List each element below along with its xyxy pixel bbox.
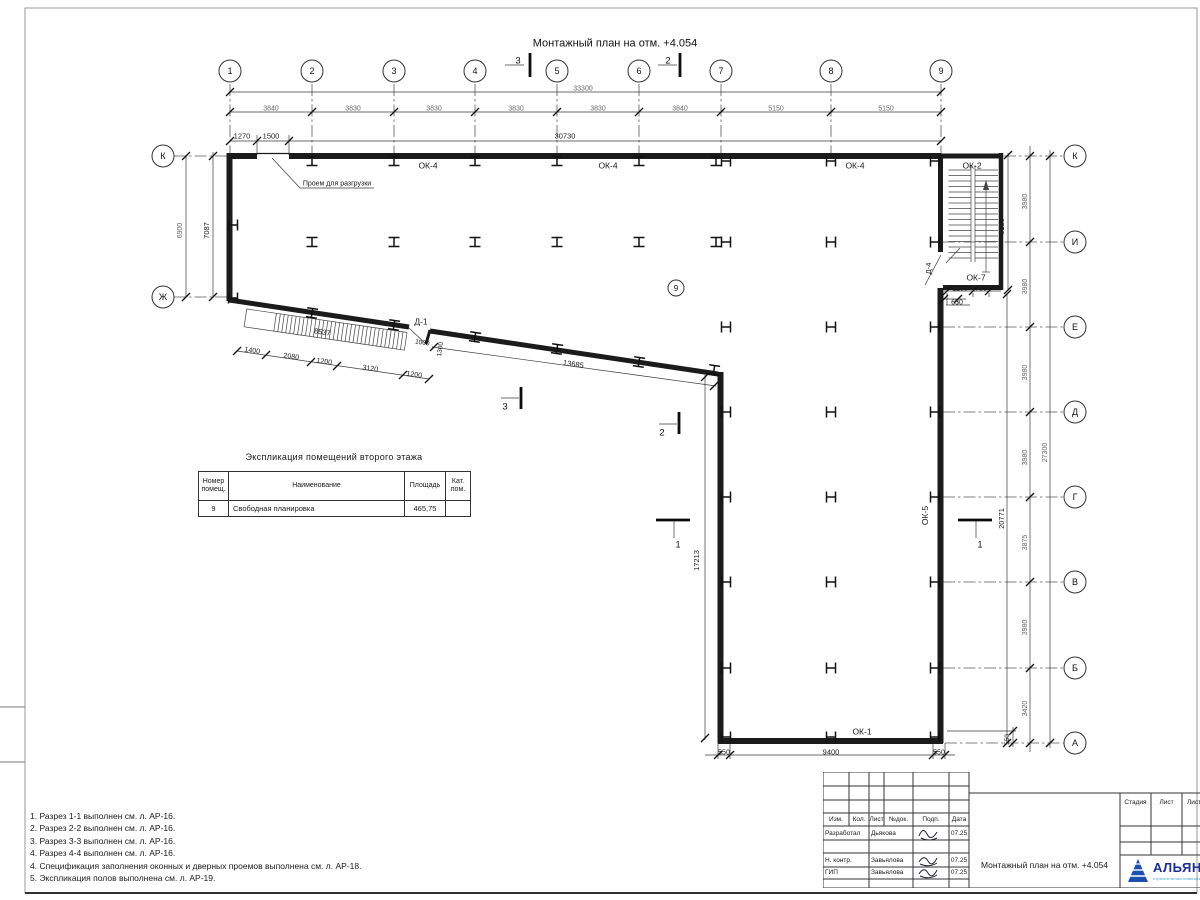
ramp-tread bbox=[365, 327, 368, 345]
note-line: 2. Разрез 2-2 выполнен см. л. АР-16. bbox=[30, 822, 361, 834]
axis-bubble-label: 3 bbox=[391, 66, 396, 76]
plan-label: 650 bbox=[951, 300, 963, 307]
ramp-tread bbox=[278, 314, 281, 332]
room-area-cell: 465,75 bbox=[405, 501, 446, 517]
steel-columns bbox=[229, 156, 940, 743]
ramp-tread bbox=[396, 331, 399, 349]
ramp-tread bbox=[290, 316, 293, 334]
note-line: 4. Спецификация заполнения оконных и две… bbox=[30, 860, 361, 872]
tb-header-izm: Изм. bbox=[823, 816, 849, 823]
tb-role-gip: ГИП bbox=[825, 869, 838, 876]
plan-label: 1500 bbox=[263, 132, 280, 141]
plan-label: 3830 bbox=[426, 106, 442, 113]
plan-label: ОК-4 bbox=[845, 161, 864, 171]
ramp-tread bbox=[393, 331, 396, 349]
column-symbol bbox=[722, 322, 731, 333]
section-marks bbox=[521, 53, 992, 520]
table-row: 9 Свободная планировка 465,75 bbox=[199, 501, 471, 517]
plan-label: 17213 bbox=[692, 550, 701, 571]
axis-bubble-label: 9 bbox=[674, 284, 679, 293]
axis-bubble: 5 bbox=[546, 60, 568, 82]
ramp-tread bbox=[373, 328, 376, 346]
plan-label: ОК-4 bbox=[598, 161, 617, 171]
axis-bubble-label: 6 bbox=[636, 66, 641, 76]
plan-label: ОК-5 bbox=[920, 506, 930, 525]
ramp-tread bbox=[345, 324, 348, 342]
column-symbol bbox=[389, 238, 400, 247]
column-symbol bbox=[634, 238, 645, 247]
column-symbol bbox=[307, 238, 318, 247]
plan-label: ОК-1 bbox=[852, 727, 871, 737]
plan-label: 33300 bbox=[573, 86, 593, 93]
tb-header-list: Лист bbox=[869, 816, 884, 823]
plan-label: 1200 bbox=[316, 357, 333, 366]
axis-bubble-label: 9 bbox=[938, 66, 943, 76]
plan-label: 5150 bbox=[878, 106, 894, 113]
axis-bubble-label: Е bbox=[1072, 322, 1078, 332]
tb-role-developer: Разработал bbox=[825, 830, 860, 837]
room-name-cell: Свободная планировка bbox=[229, 501, 405, 517]
drawing-sheet: 123456789КЖКИЕДГВБА9 Монтажный план на о… bbox=[0, 0, 1200, 900]
ramp-tread bbox=[389, 330, 392, 348]
dimension-lines bbox=[186, 65, 1050, 759]
plan-label: 750 bbox=[975, 286, 987, 293]
tb-sheets-header: Листов bbox=[1182, 799, 1200, 806]
ramp-tread bbox=[309, 319, 312, 337]
plan-label: Монтажный план на отм. +4.054 bbox=[533, 38, 697, 50]
axis-bubble-label: И bbox=[1072, 237, 1078, 247]
signature bbox=[919, 830, 937, 877]
note-line: 4. Разрез 4-4 выполнен см. л. АР-16. bbox=[30, 847, 361, 859]
ramp-tread bbox=[357, 325, 360, 343]
col-header-name: Наименование bbox=[229, 472, 405, 501]
plan-label: 1000 bbox=[415, 339, 431, 348]
dim-line bbox=[272, 158, 300, 188]
ramp-tread bbox=[282, 314, 285, 332]
axis-bubble: Д bbox=[1064, 401, 1086, 423]
plan-label: 6180 bbox=[997, 218, 1006, 235]
plan-label: 2 bbox=[659, 428, 664, 439]
plan-label: 1 bbox=[675, 540, 680, 550]
ramp-tread bbox=[305, 318, 308, 336]
column-symbol bbox=[552, 238, 563, 247]
col-header-area: Площадь bbox=[405, 472, 446, 501]
plan-label: 1200 bbox=[406, 370, 423, 379]
column-symbol bbox=[827, 407, 836, 418]
column-symbol bbox=[722, 237, 731, 248]
room-cat-cell bbox=[446, 501, 471, 517]
annotations: Монтажный план на отм. +4.05433300384038… bbox=[177, 38, 1049, 757]
tb-sheet-header: Лист bbox=[1151, 799, 1182, 806]
axis-bubble-label: А bbox=[1072, 738, 1078, 748]
room-schedule-title: Экспликация помещений второго этажа bbox=[198, 452, 470, 462]
axis-bubble-label: Г bbox=[1073, 492, 1078, 502]
plan-label: 550 bbox=[933, 750, 945, 757]
room-schedule: Экспликация помещений второго этажа Номе… bbox=[198, 452, 470, 517]
plan-label: 20771 bbox=[997, 508, 1006, 529]
dim-tick bbox=[425, 375, 433, 383]
axis-bubbles: 123456789КЖКИЕДГВБА9 bbox=[152, 60, 1086, 754]
floor-plan-drawing: 123456789КЖКИЕДГВБА9 Монтажный план на о… bbox=[0, 0, 1200, 900]
dimension-ticks bbox=[182, 88, 1054, 759]
axis-bubble: 3 bbox=[383, 60, 405, 82]
ramp-tread bbox=[286, 315, 289, 333]
plan-label: 550 bbox=[1004, 734, 1011, 745]
tb-stage-header: Стадия bbox=[1120, 799, 1151, 806]
tb-name-ncontr: Завьялова bbox=[871, 857, 903, 864]
axis-bubble: Е bbox=[1064, 316, 1086, 338]
company-logo-subtext: строительная компания bbox=[1153, 876, 1200, 881]
plan-label: 3 bbox=[515, 56, 520, 67]
tb-date-gip: 07.25 bbox=[949, 869, 969, 876]
col-header-cat: Кат. пом. bbox=[446, 472, 471, 501]
plan-label: 3980 bbox=[1022, 279, 1029, 295]
tb-doc-title: Монтажный план на отм. +4.054 bbox=[973, 860, 1116, 870]
axis-bubble-label: К bbox=[1072, 151, 1078, 161]
plan-label: 3840 bbox=[672, 106, 688, 113]
tb-date-ncontr: 07.25 bbox=[949, 857, 969, 864]
axis-bubble: Г bbox=[1064, 486, 1086, 508]
ramp-tread bbox=[381, 329, 384, 347]
plan-label: 13685 bbox=[562, 358, 584, 370]
wall-segment bbox=[229, 300, 409, 327]
axis-bubble: 4 bbox=[464, 60, 486, 82]
plan-label: 27300 bbox=[1042, 443, 1049, 463]
plan-label: ОК-4 bbox=[418, 161, 437, 171]
axis-bubble-label: 5 bbox=[554, 66, 559, 76]
axis-bubble-label: 8 bbox=[828, 66, 833, 76]
axis-bubble: И bbox=[1064, 231, 1086, 253]
column-symbol bbox=[827, 237, 836, 248]
plan-label: 1300 bbox=[436, 341, 445, 357]
plan-label: 5150 bbox=[768, 106, 784, 113]
axis-bubble: К bbox=[1064, 145, 1086, 167]
col-header-number: Номер помещ. bbox=[199, 472, 229, 501]
tb-header-data: Дата bbox=[949, 816, 969, 823]
room-number-cell: 9 bbox=[199, 501, 229, 517]
tb-name-developer: Дьякова bbox=[871, 830, 896, 837]
axis-bubble-label: Ж bbox=[159, 292, 168, 302]
plan-label: 3830 bbox=[590, 106, 606, 113]
ramp-tread bbox=[361, 326, 364, 344]
room-schedule-table: Номер помещ. Наименование Площадь Кат. п… bbox=[198, 471, 471, 517]
plan-label: 2 bbox=[665, 56, 670, 67]
plan-label: 9400 bbox=[823, 748, 840, 757]
column-symbol bbox=[827, 663, 836, 674]
ramp-tread bbox=[298, 317, 301, 335]
axis-bubble: Б bbox=[1064, 657, 1086, 679]
plan-label: 3875 bbox=[1022, 535, 1029, 551]
note-line: 3. Разрез 3-3 выполнен см. л. АР-16. bbox=[30, 835, 361, 847]
ramp-tread bbox=[377, 328, 380, 346]
plan-label: 3830 bbox=[508, 106, 524, 113]
dim-line bbox=[946, 248, 960, 263]
plan-label: ОК-2 bbox=[962, 161, 981, 171]
tb-header-ndok: №док. bbox=[884, 816, 913, 823]
column-symbol bbox=[711, 238, 722, 247]
plan-label: 7087 bbox=[202, 222, 211, 239]
note-line: 1. Разрез 1-1 выполнен см. л. АР-16. bbox=[30, 810, 361, 822]
plan-label: 1 bbox=[977, 540, 982, 550]
plan-label: 3980 bbox=[1022, 450, 1029, 466]
plan-label: 2080 bbox=[283, 352, 300, 361]
axis-bubble: А bbox=[1064, 732, 1086, 754]
title-block: Изм. Кол. Лист №док. Подп. Дата Разработ… bbox=[823, 772, 1200, 888]
alliance-logo-icon bbox=[1128, 859, 1148, 882]
ramp-tread bbox=[337, 323, 340, 341]
column-symbol bbox=[827, 577, 836, 588]
note-line: 5. Экспликация полов выполнена см. л. АР… bbox=[30, 872, 361, 884]
column-symbol bbox=[470, 238, 481, 247]
dim-tick bbox=[233, 347, 241, 355]
axis-bubble-label: Д bbox=[1072, 407, 1078, 417]
ramp-tread bbox=[369, 327, 372, 345]
axis-bubble: В bbox=[1064, 571, 1086, 593]
axis-bubble: 7 bbox=[710, 60, 732, 82]
plan-label: 3 bbox=[502, 402, 507, 413]
plan-label: 3120 bbox=[362, 364, 379, 373]
company-logo-text: АЛЬЯНС bbox=[1153, 860, 1200, 875]
plan-label: ОК-7 bbox=[966, 273, 985, 283]
ramp-tread bbox=[353, 325, 356, 343]
ramp-tread bbox=[302, 317, 305, 335]
ramp-tread bbox=[385, 329, 388, 347]
axis-bubble-label: 4 bbox=[472, 66, 477, 76]
plan-label: 3830 bbox=[345, 106, 361, 113]
tb-header-podp: Подп. bbox=[913, 816, 949, 823]
ramp-tread bbox=[349, 324, 352, 342]
walls bbox=[227, 153, 1003, 743]
plan-label: 6900 bbox=[177, 223, 184, 239]
plan-label: 3980 bbox=[1022, 365, 1029, 381]
column-symbol bbox=[827, 322, 836, 333]
axis-bubble: 9 bbox=[930, 60, 952, 82]
axis-bubble-label: К bbox=[160, 151, 166, 161]
tb-name-gip: Завьялова bbox=[871, 869, 903, 876]
plan-label: 1200 bbox=[952, 286, 968, 293]
staircase bbox=[949, 165, 999, 272]
axis-bubble: 1 bbox=[219, 60, 241, 82]
plan-label: 8537 bbox=[313, 326, 331, 337]
ramp-tread bbox=[341, 323, 344, 341]
ramp-tread bbox=[333, 322, 336, 340]
plan-label: 550 bbox=[718, 750, 730, 757]
axis-bubble-label: 2 bbox=[309, 66, 314, 76]
tb-header-kol: Кол. bbox=[849, 816, 869, 823]
axis-bubble: Ж bbox=[152, 286, 174, 308]
axis-bubble: 2 bbox=[301, 60, 323, 82]
plan-label: 3980 bbox=[1022, 620, 1029, 636]
dim-tick bbox=[710, 382, 718, 390]
plan-label: 1270 bbox=[234, 132, 251, 141]
axis-bubble-label: 7 bbox=[718, 66, 723, 76]
ramp-tread bbox=[400, 332, 403, 350]
plan-label: Д-1 bbox=[414, 317, 428, 327]
axis-bubble: 9 bbox=[668, 280, 684, 296]
axis-bubble: 6 bbox=[628, 60, 650, 82]
axis-bubble-label: Б bbox=[1072, 663, 1078, 673]
axis-bubble-label: В bbox=[1072, 577, 1078, 587]
plan-label: 1400 bbox=[244, 346, 261, 355]
axis-bubble-label: 1 bbox=[227, 66, 232, 76]
plan-label: 3840 bbox=[263, 106, 279, 113]
plan-label: Д-4 bbox=[924, 263, 933, 275]
stair-arrow-head bbox=[983, 180, 989, 190]
axis-bubble: 8 bbox=[820, 60, 842, 82]
tb-role-ncontr: Н. контр. bbox=[825, 857, 852, 864]
ramp-tread bbox=[294, 316, 297, 334]
tb-date-developer: 07.25 bbox=[949, 830, 969, 837]
axis-bubble: К bbox=[152, 145, 174, 167]
notes-list: 1. Разрез 1-1 выполнен см. л. АР-16. 2. … bbox=[30, 810, 361, 884]
column-symbol bbox=[827, 492, 836, 503]
plan-label: 3420 bbox=[1022, 701, 1029, 717]
plan-label: 30730 bbox=[555, 132, 576, 141]
plan-label: 3980 bbox=[1022, 194, 1029, 210]
plan-label: Проем для разгрузки bbox=[303, 181, 371, 188]
